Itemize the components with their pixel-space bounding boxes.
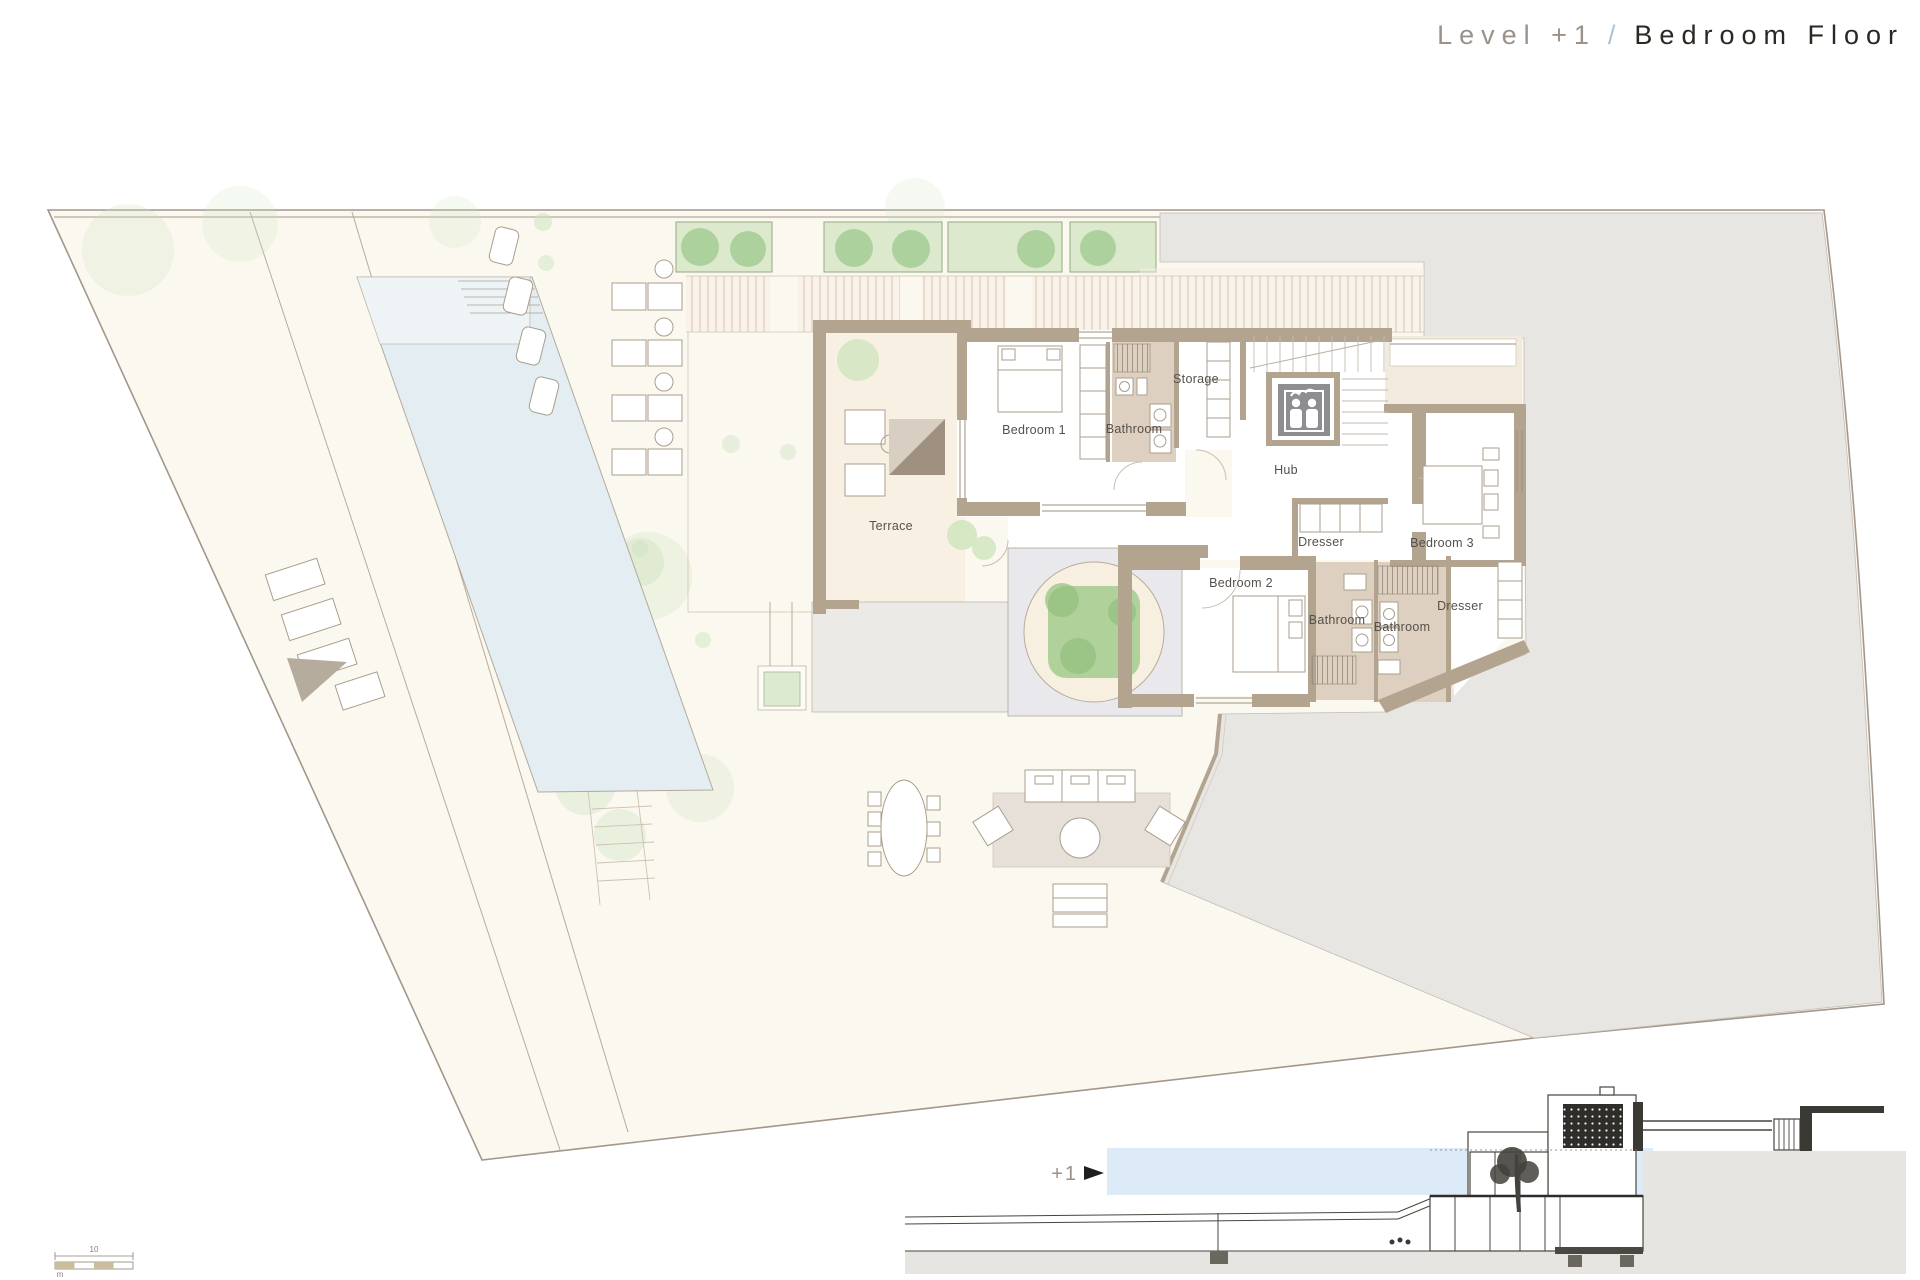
room-label-hub: Hub [1274, 463, 1298, 477]
level-marker-arrow-icon [1084, 1166, 1104, 1180]
room-label-terrace: Terrace [869, 519, 913, 533]
room-label-storage: Storage [1173, 372, 1219, 386]
room-label-dresser-1: Dresser [1298, 535, 1344, 549]
room-label-dresser-2: Dresser [1437, 599, 1483, 613]
sheet-title-separator: / [1596, 20, 1635, 50]
building-upper-floor [758, 320, 1530, 716]
sheet-title-level: Level +1 [1437, 20, 1596, 50]
site-plan-drawing: Terrace Bedroom 1 Bathroom Storage Hub D… [0, 0, 1920, 1280]
level-marker: +1 [1051, 1163, 1104, 1185]
sofa [1025, 770, 1135, 802]
planter-row [676, 222, 1156, 272]
room-label-bedroom-3: Bedroom 3 [1410, 536, 1474, 550]
coffee-table [1060, 818, 1100, 858]
scale-bar-value: 10 [90, 1245, 99, 1254]
room-label-bedroom-1: Bedroom 1 [1002, 423, 1066, 437]
room-label-bathroom-1: Bathroom [1106, 422, 1163, 436]
elevator [1269, 375, 1337, 443]
sheet-title: Level +1/Bedroom Floor [1437, 20, 1904, 51]
scale-bar: 10 m [55, 1245, 133, 1279]
paved-apron [812, 602, 1008, 712]
room-label-bathroom-2: Bathroom [1309, 613, 1366, 627]
room-label-bedroom-2: Bedroom 2 [1209, 576, 1273, 590]
pool-shallow-shelf [357, 277, 530, 344]
section-drawing: +1 [905, 1087, 1906, 1274]
floor-plan-sheet: Terrace Bedroom 1 Bathroom Storage Hub D… [0, 0, 1920, 1280]
scale-bar-unit: m [57, 1270, 64, 1279]
section-shrubs [1390, 1238, 1411, 1245]
small-planter [764, 672, 800, 706]
pergola-slats [686, 268, 1424, 334]
level-marker-text: +1 [1051, 1163, 1078, 1185]
sheet-title-name: Bedroom Floor [1634, 20, 1904, 50]
room-label-bathroom-3: Bathroom [1374, 620, 1431, 634]
